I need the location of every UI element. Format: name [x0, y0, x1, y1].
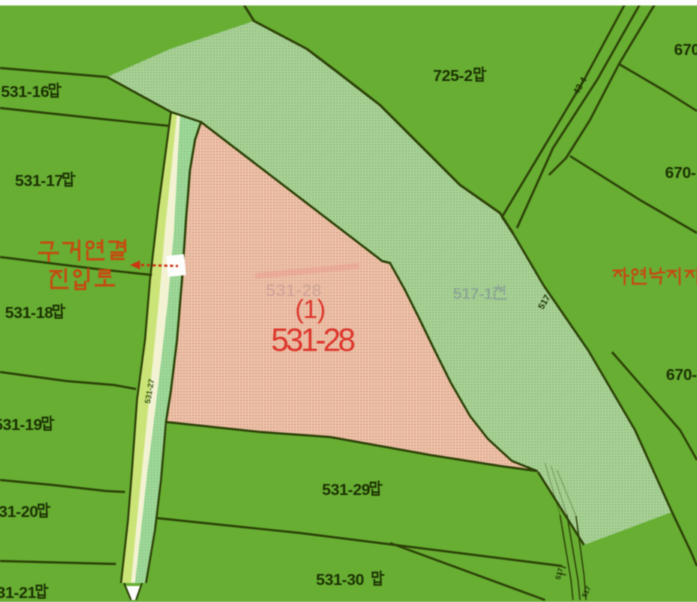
svg-text:531-16: 531-16 [1, 84, 49, 101]
svg-text:670-: 670- [666, 367, 697, 384]
svg-text:531-19: 531-19 [0, 417, 42, 434]
svg-text:531-30: 531-30 [316, 572, 364, 589]
svg-text:531-18: 531-18 [5, 305, 53, 322]
svg-text:531-21: 531-21 [0, 585, 36, 602]
svg-text:(1): (1) [295, 294, 325, 324]
svg-text:531-29: 531-29 [322, 482, 370, 499]
svg-text:670-: 670- [665, 165, 696, 182]
svg-text:517-1: 517-1 [453, 286, 493, 303]
svg-text:531-20: 531-20 [0, 504, 38, 521]
svg-text:531-17: 531-17 [15, 173, 63, 190]
svg-text:670-: 670- [674, 42, 697, 59]
svg-text:531-28: 531-28 [271, 322, 355, 358]
svg-text:725-2: 725-2 [433, 68, 473, 85]
